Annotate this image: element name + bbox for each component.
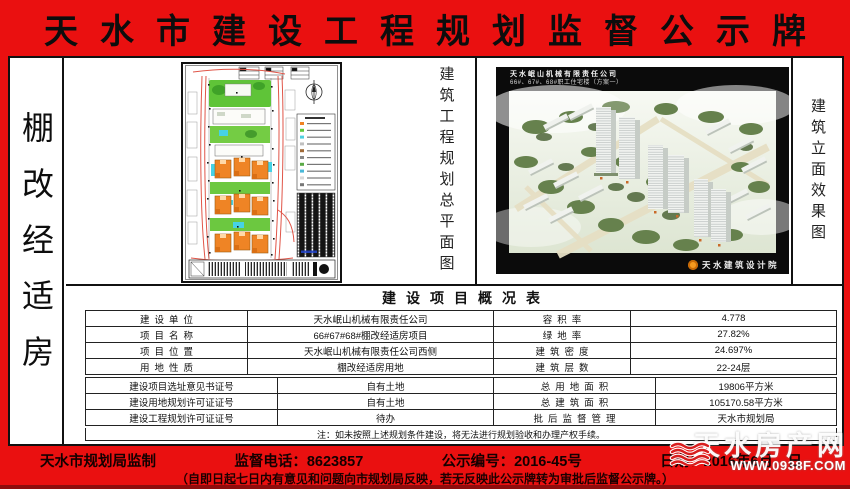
table-title: 建设项目概况表	[85, 288, 837, 308]
watermark-wave-icon	[669, 440, 715, 466]
left-strip: 棚改经适房	[10, 58, 64, 444]
site-blocks	[209, 80, 272, 253]
plan-top-tables	[239, 67, 309, 79]
section-divider	[475, 58, 477, 284]
row-label: 项目名称	[86, 327, 248, 343]
row-value: 4.778	[631, 311, 837, 327]
row-label: 建筑层数	[494, 359, 631, 375]
row-value: 棚改经适房用地	[248, 359, 494, 375]
row-value: 自有土地	[278, 394, 494, 410]
plan-legend	[297, 114, 335, 190]
designer-name: 天水建筑设计院	[702, 259, 779, 271]
site-plan-image	[181, 62, 342, 283]
row-value: 天水岷山机械有限责任公司西侧	[248, 343, 494, 359]
row-label: 建设工程规划许可证证号	[86, 410, 278, 426]
rendering-image: 天水岷山机械有限责任公司 66#、67#、68#职工住宅楼（方案一） 天水建筑设…	[496, 67, 789, 274]
row-value: 自有土地	[278, 378, 494, 394]
row-label: 容积率	[494, 311, 631, 327]
project-table-top: 建设单位 天水岷山机械有限责任公司 容积率 4.778 项目名称 66#67#6…	[85, 310, 837, 375]
row-value: 22-24层	[631, 359, 837, 375]
row-value: 66#67#68#棚改经适房项目	[248, 327, 494, 343]
banner-title: 天水市建设工程规划监督公示牌	[0, 0, 850, 56]
render-title-line1: 天水岷山机械有限责任公司	[510, 71, 623, 80]
plan-caption: 建筑工程规划总平面图	[418, 58, 474, 284]
notice-board: 天水市建设工程规划监督公示牌 棚改经适房	[0, 0, 850, 489]
row-label: 项目位置	[86, 343, 248, 359]
row-label: 建设用地规划许可证证号	[86, 394, 278, 410]
row-value: 27.82%	[631, 327, 837, 343]
footer-notice-no: 公示编号：2016-45号	[442, 450, 582, 471]
row-label: 批后监督管理	[494, 410, 656, 426]
row-value: 105170.58平方米	[656, 394, 837, 410]
render-title-line2: 66#、67#、68#职工住宅楼（方案一）	[510, 80, 623, 88]
designer-credit: 天水建筑设计院	[688, 259, 779, 271]
row-label: 用地性质	[86, 359, 248, 375]
watermark-url: WWW.0938F.COM	[730, 458, 846, 473]
plan-title-strip	[189, 260, 335, 278]
row-label: 建筑密度	[494, 343, 631, 359]
project-table-bottom: 建设项目选址意见书证号 自有土地 总用地面积 19806平方米 建设用地规划许可…	[85, 377, 837, 426]
row-value: 待办	[278, 410, 494, 426]
plan-notes-block	[297, 193, 335, 257]
row-label: 绿地率	[494, 327, 631, 343]
panel-content: 建筑工程规划总平面图	[66, 58, 842, 444]
watermark: 天水房产网 WWW.0938F.COM	[663, 424, 848, 480]
render-caption: 建筑立面效果图	[793, 58, 842, 284]
site-plan-svg	[181, 62, 342, 283]
row-value: 24.697%	[631, 343, 837, 359]
designer-logo-icon	[688, 260, 698, 270]
row-label: 总用地面积	[494, 378, 656, 394]
images-row: 建筑工程规划总平面图	[66, 58, 842, 286]
row-label: 建设项目选址意见书证号	[86, 378, 278, 394]
left-strip-label: 棚改经适房	[13, 111, 59, 391]
main-panel: 棚改经适房	[8, 56, 844, 446]
render-title: 天水岷山机械有限责任公司 66#、67#、68#职工住宅楼（方案一）	[510, 71, 623, 87]
footer-phone: 监督电话：8623857	[234, 450, 363, 471]
row-value: 19806平方米	[656, 378, 837, 394]
row-label: 建设单位	[86, 311, 248, 327]
footer-issuer: 天水市规划局监制	[40, 450, 156, 471]
project-overview-section: 建设项目概况表 建设单位 天水岷山机械有限责任公司 容积率 4.778 项目名称…	[66, 286, 842, 444]
footer-edge	[0, 485, 850, 489]
row-value: 天水岷山机械有限责任公司	[248, 311, 494, 327]
row-label: 总建筑面积	[494, 394, 656, 410]
rendering-svg	[496, 67, 789, 274]
